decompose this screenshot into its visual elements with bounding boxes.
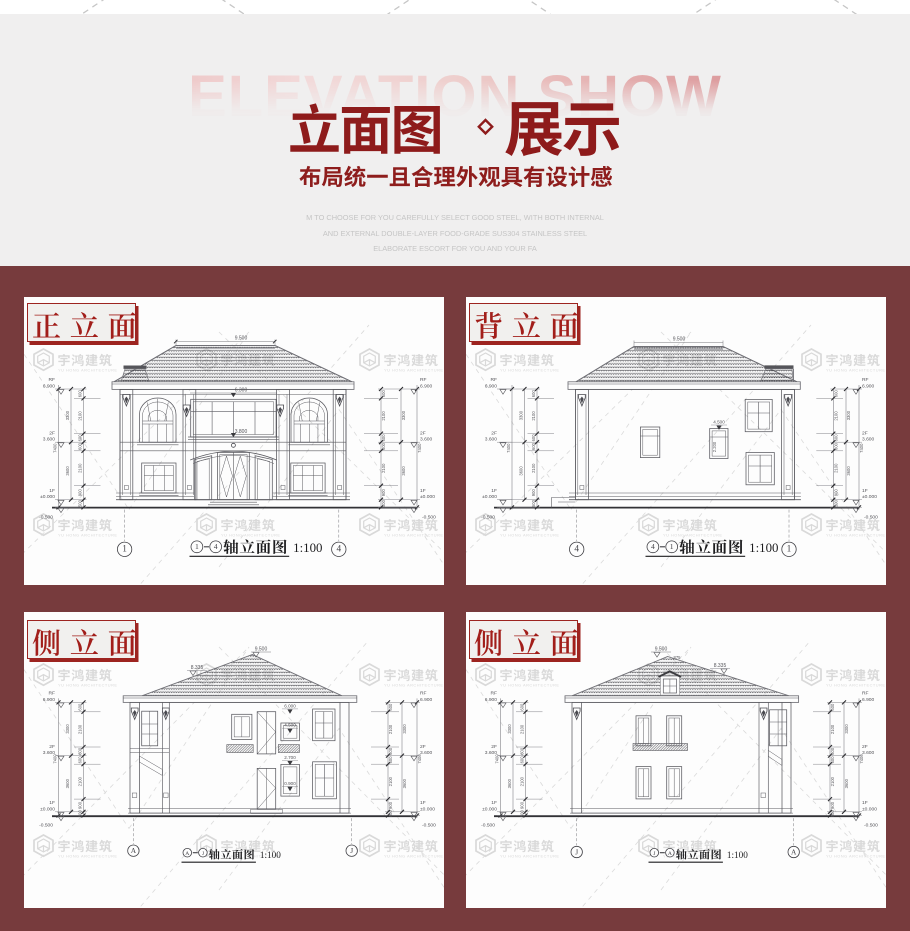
svg-text:7400: 7400: [506, 443, 511, 453]
svg-text:600: 600: [834, 434, 839, 442]
svg-text:6.900: 6.900: [43, 384, 56, 390]
svg-text:500: 500: [834, 499, 839, 507]
svg-text:1:100: 1:100: [749, 541, 778, 555]
svg-text:±0.000: ±0.000: [862, 494, 877, 500]
svg-text:500: 500: [78, 809, 83, 817]
svg-text:±0.000: ±0.000: [40, 494, 55, 500]
svg-text:3300: 3300: [402, 724, 407, 734]
svg-text:RF: RF: [862, 691, 869, 697]
svg-text:600: 600: [531, 442, 536, 450]
svg-text:600: 600: [78, 442, 83, 450]
svg-text:±0.000: ±0.000: [420, 806, 435, 812]
svg-text:600: 600: [388, 703, 393, 711]
svg-text:7400: 7400: [417, 443, 422, 453]
svg-text:600: 600: [78, 434, 83, 442]
svg-text:1F: 1F: [49, 488, 55, 494]
svg-text:2.700: 2.700: [284, 755, 296, 760]
svg-text:4.500: 4.500: [713, 420, 725, 425]
svg-text:3300: 3300: [65, 410, 70, 420]
svg-text:2100: 2100: [834, 411, 839, 421]
svg-text:RF: RF: [490, 377, 497, 383]
svg-text:8.335: 8.335: [714, 663, 727, 669]
svg-text:600: 600: [388, 756, 393, 764]
svg-text:2100: 2100: [381, 411, 386, 421]
svg-text:1:100: 1:100: [260, 850, 281, 860]
svg-text:-0.500: -0.500: [39, 823, 53, 829]
svg-text:2F: 2F: [49, 430, 55, 436]
svg-text:600: 600: [834, 442, 839, 450]
svg-text:900: 900: [388, 801, 393, 809]
svg-text:2100: 2100: [78, 776, 83, 786]
svg-text:-0.500: -0.500: [422, 514, 436, 520]
svg-text:600: 600: [381, 390, 386, 398]
svg-text:2100: 2100: [531, 411, 536, 421]
svg-text:900: 900: [520, 801, 525, 809]
svg-text:6.900: 6.900: [420, 384, 433, 390]
svg-text:600: 600: [381, 442, 386, 450]
svg-text:±0.000: ±0.000: [40, 806, 55, 812]
svg-text:4: 4: [336, 545, 341, 555]
svg-text:±0.000: ±0.000: [482, 494, 497, 500]
svg-text:500: 500: [520, 809, 525, 817]
svg-text:600: 600: [388, 747, 393, 755]
svg-text:3600: 3600: [844, 778, 849, 788]
svg-text:-0.500: -0.500: [864, 823, 878, 829]
svg-text:6.900: 6.900: [862, 384, 875, 390]
svg-text:6.900: 6.900: [420, 697, 433, 703]
svg-text:2100: 2100: [830, 776, 835, 786]
svg-text:3.600: 3.600: [420, 750, 433, 756]
svg-text:600: 600: [531, 390, 536, 398]
svg-text:3300: 3300: [844, 724, 849, 734]
svg-text:3.600: 3.600: [485, 750, 498, 756]
svg-text:600: 600: [381, 434, 386, 442]
svg-text:3300: 3300: [65, 724, 70, 734]
svg-text:3600: 3600: [402, 778, 407, 788]
svg-text:900: 900: [834, 489, 839, 497]
svg-text:4: 4: [651, 542, 655, 551]
svg-text:900: 900: [78, 801, 83, 809]
svg-text:RF: RF: [48, 691, 55, 697]
svg-text:600: 600: [520, 703, 525, 711]
svg-text:500: 500: [381, 499, 386, 507]
svg-text:2100: 2100: [830, 724, 835, 734]
svg-text:3.600: 3.600: [43, 437, 56, 443]
svg-text:3.600: 3.600: [862, 750, 875, 756]
svg-text:500: 500: [830, 809, 835, 817]
svg-text:2100: 2100: [78, 463, 83, 473]
svg-text:RF: RF: [490, 691, 497, 697]
svg-text:6.000: 6.000: [284, 703, 296, 708]
svg-text:2F: 2F: [862, 430, 868, 436]
svg-text:±0.000: ±0.000: [862, 806, 877, 812]
svg-text:6.900: 6.900: [485, 384, 498, 390]
svg-text:900: 900: [78, 489, 83, 497]
svg-text:J: J: [575, 847, 578, 856]
svg-text:3.600: 3.600: [862, 437, 875, 443]
svg-text:2100: 2100: [531, 463, 536, 473]
svg-text:600: 600: [78, 756, 83, 764]
svg-text:1F: 1F: [49, 800, 55, 806]
svg-text:3.600: 3.600: [43, 750, 56, 756]
svg-text:6.900: 6.900: [485, 697, 498, 703]
svg-text:3600: 3600: [65, 466, 70, 476]
svg-text:1: 1: [670, 542, 674, 551]
svg-text:3600: 3600: [519, 466, 524, 476]
svg-text:1:100: 1:100: [727, 850, 748, 860]
svg-text:600: 600: [520, 747, 525, 755]
svg-text:600: 600: [834, 390, 839, 398]
svg-text:500: 500: [78, 499, 83, 507]
svg-text:7400: 7400: [859, 443, 864, 453]
svg-text:RF: RF: [420, 691, 427, 697]
svg-text:3300: 3300: [846, 410, 851, 420]
svg-text:500: 500: [388, 809, 393, 817]
svg-text:3.800: 3.800: [235, 429, 248, 435]
svg-text:1: 1: [787, 545, 792, 555]
svg-text:-0.500: -0.500: [39, 514, 53, 520]
svg-text:600: 600: [830, 747, 835, 755]
svg-text:1F: 1F: [862, 800, 868, 806]
svg-text:RF: RF: [862, 377, 869, 383]
svg-text:7400: 7400: [53, 443, 58, 453]
svg-text:A: A: [791, 847, 797, 856]
svg-text:600: 600: [520, 756, 525, 764]
svg-text:2100: 2100: [520, 724, 525, 734]
svg-text:2100: 2100: [388, 724, 393, 734]
svg-text:RF: RF: [48, 377, 55, 383]
svg-text:RF: RF: [420, 377, 427, 383]
svg-text:-0.500: -0.500: [864, 514, 878, 520]
svg-text:A: A: [185, 851, 189, 857]
svg-text:9.500: 9.500: [255, 647, 268, 653]
svg-text:6.900: 6.900: [43, 697, 56, 703]
svg-text:3300: 3300: [401, 410, 406, 420]
svg-text:4: 4: [214, 542, 218, 551]
svg-text:3600: 3600: [846, 466, 851, 476]
svg-text:1: 1: [195, 542, 199, 551]
svg-text:1F: 1F: [420, 488, 426, 494]
svg-text:A: A: [668, 851, 672, 857]
svg-text:3.600: 3.600: [485, 437, 498, 443]
svg-text:A: A: [131, 846, 137, 855]
svg-text:-0.500: -0.500: [481, 514, 495, 520]
svg-text:2F: 2F: [420, 430, 426, 436]
svg-text:J: J: [350, 846, 353, 855]
svg-text:600: 600: [531, 434, 536, 442]
svg-text:3300: 3300: [519, 410, 524, 420]
svg-text:-0.500: -0.500: [422, 823, 436, 829]
svg-text:2F: 2F: [862, 744, 868, 750]
svg-text:0.900: 0.900: [284, 781, 296, 786]
svg-text:3300: 3300: [507, 724, 512, 734]
svg-text:4: 4: [574, 545, 579, 555]
svg-text:2100: 2100: [520, 776, 525, 786]
svg-text:8.335: 8.335: [191, 665, 204, 671]
svg-text:±0.000: ±0.000: [482, 806, 497, 812]
svg-text:3600: 3600: [507, 778, 512, 788]
svg-text:900: 900: [381, 489, 386, 497]
svg-text:1F: 1F: [491, 488, 497, 494]
svg-text:9.500: 9.500: [655, 647, 668, 653]
svg-text:2F: 2F: [420, 744, 426, 750]
svg-text:600: 600: [830, 703, 835, 711]
svg-text:-0.500: -0.500: [481, 823, 495, 829]
svg-text:6.900: 6.900: [862, 697, 875, 703]
svg-text:1:100: 1:100: [293, 541, 322, 555]
svg-text:6.300: 6.300: [235, 388, 248, 394]
svg-text:875: 875: [674, 655, 682, 660]
svg-text:2100: 2100: [834, 463, 839, 473]
svg-text:9.500: 9.500: [673, 337, 686, 343]
svg-text:3600: 3600: [401, 466, 406, 476]
svg-text:600: 600: [830, 756, 835, 764]
svg-text:9.500: 9.500: [235, 336, 248, 342]
svg-text:1: 1: [122, 545, 127, 555]
svg-text:1F: 1F: [862, 488, 868, 494]
svg-text:4.500: 4.500: [284, 723, 296, 728]
svg-text:2F: 2F: [49, 744, 55, 750]
svg-text:3.600: 3.600: [420, 437, 433, 443]
svg-text:900: 900: [531, 489, 536, 497]
svg-text:500: 500: [531, 499, 536, 507]
svg-text:600: 600: [78, 703, 83, 711]
svg-text:2100: 2100: [78, 411, 83, 421]
svg-text:900: 900: [830, 801, 835, 809]
svg-text:2.200: 2.200: [712, 441, 717, 452]
svg-text:600: 600: [78, 747, 83, 755]
svg-text:1F: 1F: [420, 800, 426, 806]
svg-text:1F: 1F: [491, 800, 497, 806]
svg-text:2F: 2F: [491, 430, 497, 436]
svg-text:600: 600: [78, 390, 83, 398]
svg-text:2F: 2F: [491, 744, 497, 750]
svg-text:2100: 2100: [388, 776, 393, 786]
svg-text:2100: 2100: [78, 724, 83, 734]
svg-text:2100: 2100: [381, 463, 386, 473]
svg-text:±0.000: ±0.000: [420, 494, 435, 500]
svg-text:3600: 3600: [65, 778, 70, 788]
